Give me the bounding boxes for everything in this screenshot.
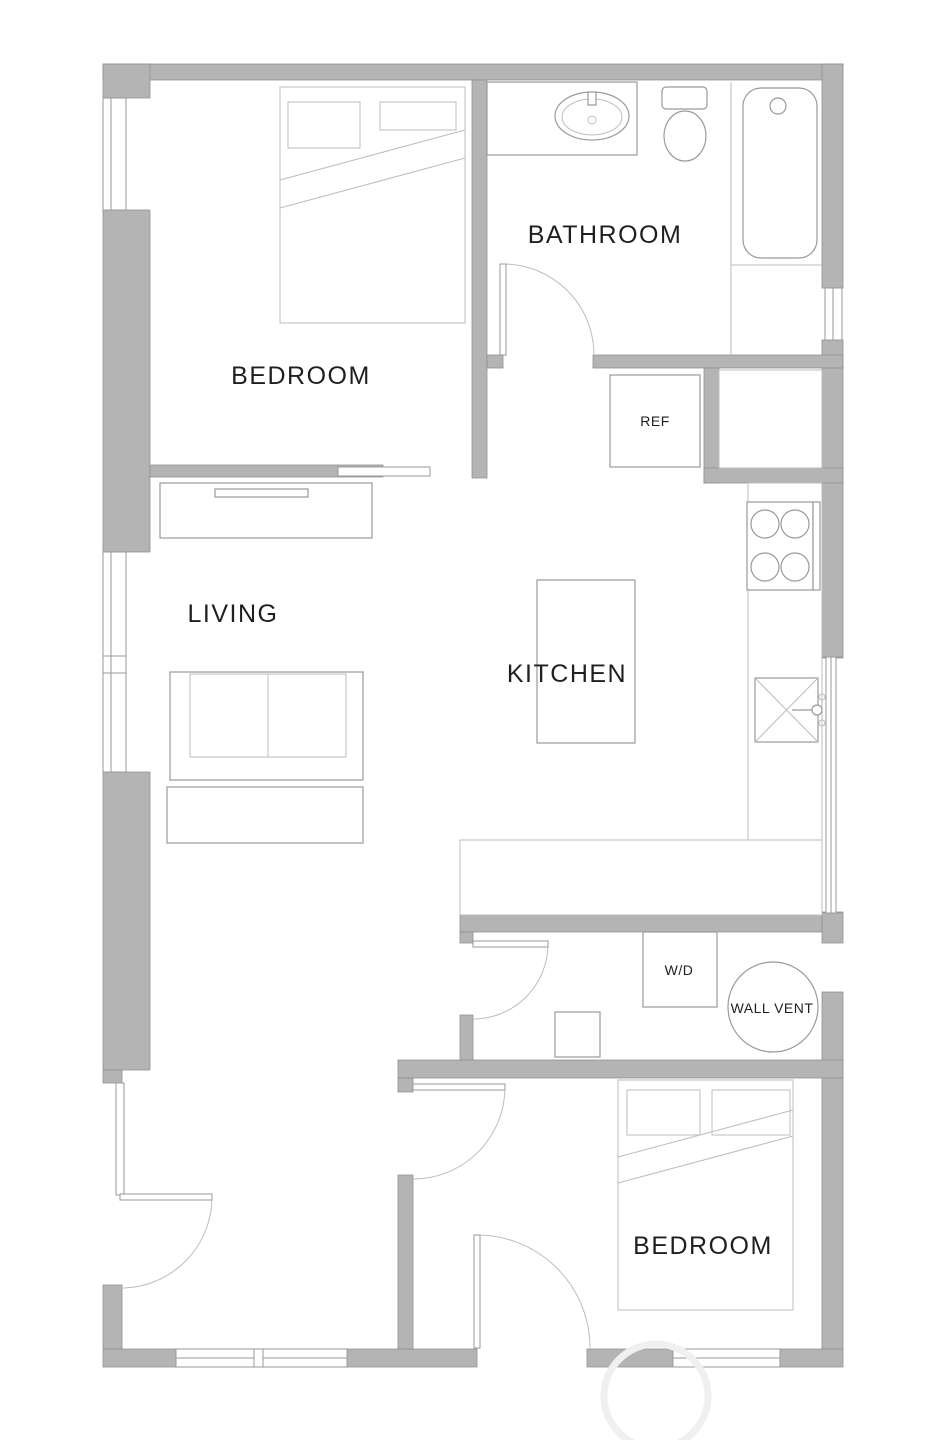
wall-right-lower-b (822, 992, 843, 1349)
wall-hall-stem (460, 1015, 473, 1060)
hall-cabinet (555, 1012, 600, 1057)
bathtub-drain-icon (770, 98, 786, 114)
bed-1 (280, 87, 465, 323)
bed-1-pillow-right (380, 102, 456, 130)
living-south-window (176, 1349, 347, 1367)
bedroom-2-label: BEDROOM (633, 1232, 773, 1260)
wall-left-stub-a (103, 1070, 122, 1083)
counter-south-run (460, 840, 822, 915)
bedroom-2-exterior-door (474, 1235, 590, 1348)
wall-kitchen-south-step (460, 932, 473, 943)
entry-door-leaf (120, 1194, 212, 1200)
stove-side-panel (813, 502, 820, 590)
bathroom-door (500, 264, 594, 355)
wall-bedroom2-west-stub (398, 1175, 413, 1349)
wall-hall-south-step (398, 1078, 413, 1092)
bathroom-vanity (487, 82, 637, 155)
wall-right-upper (822, 64, 843, 288)
wall-left-upper (103, 210, 150, 552)
bed-2-pillow-left (627, 1090, 700, 1135)
sofa-frame (170, 672, 363, 780)
refrigerator-label: REF (640, 413, 670, 429)
bathroom-label: BATHROOM (528, 221, 683, 249)
coffee-table (167, 787, 363, 843)
hallway-door-leaf (473, 941, 548, 947)
closet (719, 370, 822, 468)
wall-top-left-corner (103, 64, 150, 98)
bedroom-2-door (413, 1084, 505, 1179)
bathroom-door-leaf (500, 264, 506, 355)
bedroom-1-sliding-door (338, 467, 430, 476)
entry-sidelight-window (116, 1083, 124, 1195)
wall-left-mid (103, 772, 150, 1070)
kitchen-faucet-icon (812, 705, 822, 715)
wall-vent-label: WALL VENT (731, 1000, 814, 1016)
kitchen-sink (755, 678, 825, 742)
wall-hall-south (398, 1060, 843, 1078)
bed-2 (618, 1080, 793, 1310)
bed-1-pillow-left (288, 102, 360, 148)
living-label: LIVING (188, 600, 279, 628)
toilet (662, 87, 707, 161)
sofa (170, 672, 363, 780)
wall-bottom-1 (103, 1349, 176, 1367)
bedroom-2-door-leaf (413, 1084, 505, 1090)
wall-left-stub-b (103, 1285, 122, 1349)
entry-door (120, 1194, 212, 1288)
sink-faucet-icon (588, 92, 596, 105)
kitchen-label: KITCHEN (507, 660, 627, 688)
washer-dryer-label: W/D (665, 962, 694, 978)
tv-console (160, 483, 372, 538)
bathroom-window (825, 288, 842, 340)
burner-icon (751, 553, 779, 581)
bathtub (731, 82, 822, 355)
wall-closet-bottom (704, 468, 843, 483)
hallway-door (473, 941, 548, 1019)
wall-right-mid (822, 340, 843, 658)
wall-top (103, 64, 843, 80)
living-window (103, 552, 126, 772)
burner-icon (781, 553, 809, 581)
wall-kitchen-south (460, 915, 822, 932)
wall-bottom-4 (780, 1349, 843, 1367)
stove (747, 502, 820, 590)
bedroom-2-exterior-door-leaf (474, 1235, 480, 1348)
floor-plan-page: BEDROOM BATHROOM LIVING KITCHEN BEDROOM … (0, 0, 932, 1440)
toilet-bowl (664, 111, 706, 161)
wall-central (472, 80, 487, 478)
bedroom-1-window (103, 98, 126, 210)
bedroom-1-label: BEDROOM (231, 362, 371, 390)
wall-bottom-2 (347, 1349, 477, 1367)
wall-right-lower-a (822, 912, 843, 943)
wall-bath-south-stub (487, 355, 503, 368)
tv-icon (215, 489, 308, 497)
burner-icon (751, 510, 779, 538)
burner-icon (781, 510, 809, 538)
wall-bath-south (593, 355, 843, 368)
wall-closet-left (704, 368, 719, 483)
floor-plan: BEDROOM BATHROOM LIVING KITCHEN BEDROOM … (0, 0, 932, 1440)
toilet-tank (662, 87, 707, 109)
